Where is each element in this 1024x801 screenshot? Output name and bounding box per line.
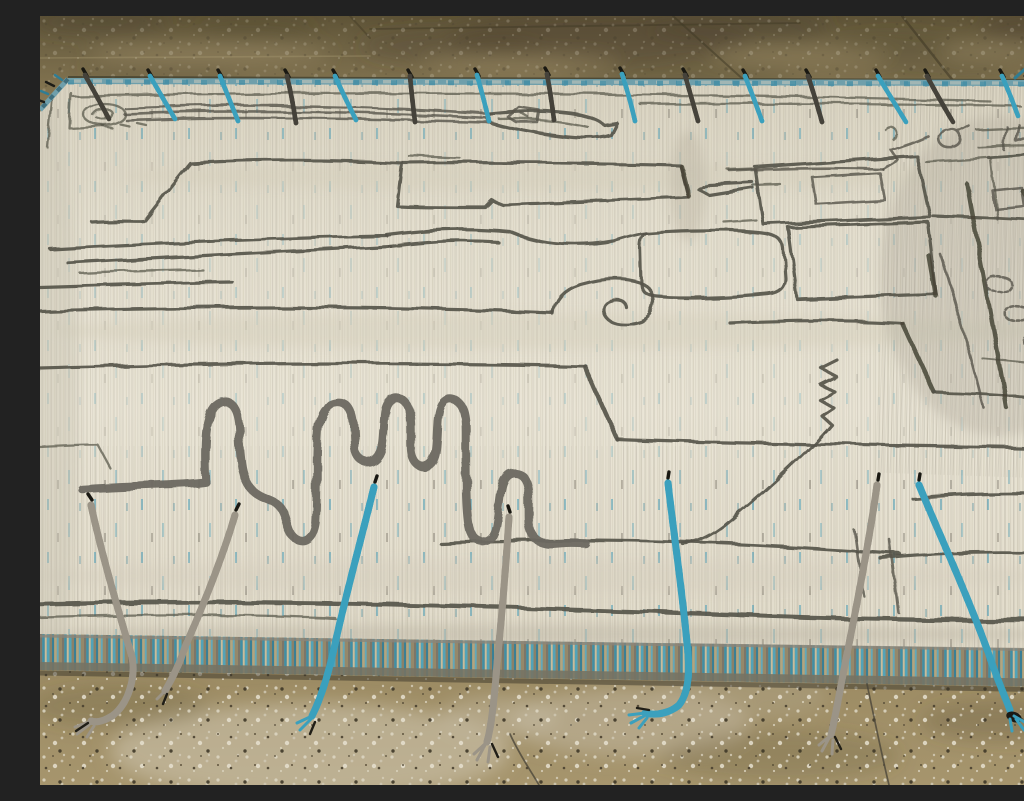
photo — [40, 16, 1024, 785]
rug-texture — [40, 71, 1024, 696]
photo-canvas — [40, 16, 1024, 785]
rug — [40, 69, 1024, 696]
